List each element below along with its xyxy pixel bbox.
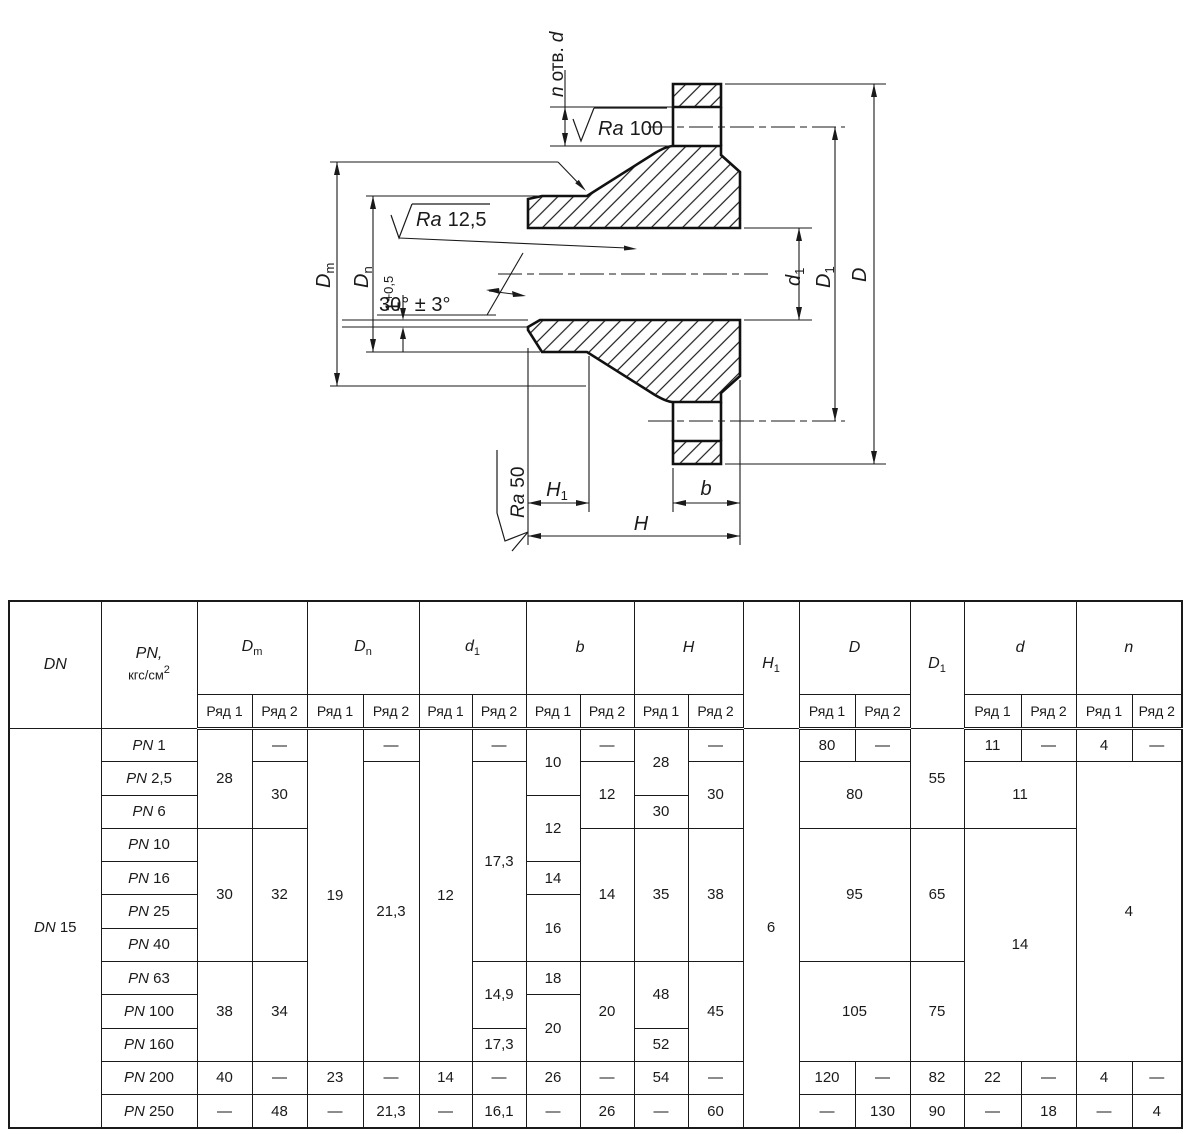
value-cell: — — [197, 1095, 252, 1128]
pn-cell: PN 2,5 — [101, 762, 197, 795]
pn-cell: PN 250 — [101, 1095, 197, 1128]
subheader-ryad1: Ряд 1 — [307, 695, 363, 729]
subheader-ryad1: Ряд 1 — [634, 695, 688, 729]
col-header-pn: PN,кгс/см2 — [101, 601, 197, 729]
subheader-ryad2: Ряд 2 — [580, 695, 634, 729]
value-cell: — — [580, 1061, 634, 1094]
col-header-dn-hub: Dn — [307, 601, 419, 695]
col-header-d1: d1 — [419, 601, 526, 695]
value-cell: 80 — [799, 762, 910, 829]
pn-cell: PN 160 — [101, 1028, 197, 1061]
col-header-b: b — [526, 601, 634, 695]
value-cell: 30 — [634, 795, 688, 828]
value-cell: 14 — [964, 828, 1076, 1061]
angle-label: 30° ± 3° — [379, 294, 450, 316]
pn-cell: PN 10 — [101, 828, 197, 861]
subheader-ryad1: Ряд 1 — [1076, 695, 1132, 729]
value-cell: — — [688, 1061, 743, 1094]
value-cell: — — [1132, 1061, 1182, 1094]
col-header-h: H — [634, 601, 743, 695]
flange-upper-body — [528, 146, 740, 228]
dim-label-d1-bore: d1 — [783, 268, 807, 286]
flange-drawing-svg: nотв.d Ra100 Ra12,5 Ra50 1+0,5 30° ± 3° … — [0, 0, 1189, 588]
value-cell: 75 — [910, 962, 964, 1062]
value-cell: 14 — [580, 828, 634, 961]
pn-cell: PN 16 — [101, 862, 197, 895]
dim-label-dn: Dn — [351, 266, 375, 288]
dim-label-dm: Dm — [313, 263, 337, 288]
value-cell: 21,3 — [363, 1095, 419, 1128]
subheader-ryad2: Ряд 2 — [1132, 695, 1182, 729]
value-cell: — — [580, 729, 634, 762]
value-cell: — — [1132, 729, 1182, 762]
value-cell: 26 — [526, 1061, 580, 1094]
value-cell: 16 — [526, 895, 580, 962]
dim-label-H: H — [634, 513, 649, 535]
value-cell: — — [634, 1095, 688, 1128]
subheader-ryad1: Ряд 1 — [964, 695, 1021, 729]
value-cell: 12 — [419, 729, 472, 1062]
value-cell: 10 — [526, 729, 580, 796]
value-cell: 17,3 — [472, 762, 526, 962]
ra12-5-label: Ra12,5 — [416, 209, 487, 231]
subheader-ryad1: Ряд 1 — [799, 695, 855, 729]
value-cell: 65 — [910, 828, 964, 961]
table-row-pn2-5: PN 2,5 30 21,3 17,3 12 30 80 11 4 — [9, 762, 1182, 795]
flange-dimensions-table: DN PN,кгс/см2 Dm Dn d1 b H H1 D D1 d n Р… — [8, 600, 1183, 1129]
value-cell: — — [855, 1061, 910, 1094]
table-row-pn250: PN 250 — 48 — 21,3 — 16,1 — 26 — 60 — 13… — [9, 1095, 1182, 1128]
table-row-pn1: DN 15 PN 1 28 — 19 — 12 — 10 — 28 — 6 80… — [9, 729, 1182, 762]
value-cell: — — [252, 729, 307, 762]
value-cell: 4 — [1076, 1061, 1132, 1094]
value-cell: — — [419, 1095, 472, 1128]
value-cell: 30 — [252, 762, 307, 829]
col-header-D: D — [799, 601, 910, 695]
pn-cell: PN 1 — [101, 729, 197, 762]
ra100-label: Ra100 — [598, 118, 663, 140]
value-cell: 4 — [1132, 1095, 1182, 1128]
value-cell: 80 — [799, 729, 855, 762]
flange-upper-rim — [673, 84, 721, 107]
value-cell: 11 — [964, 762, 1076, 829]
value-cell: 90 — [910, 1095, 964, 1128]
flange-technical-drawing: nотв.d Ra100 Ra12,5 Ra50 1+0,5 30° ± 3° … — [0, 0, 1189, 588]
value-cell: 34 — [252, 962, 307, 1062]
dim-label-H1: H1 — [546, 479, 568, 503]
value-cell: 105 — [799, 962, 910, 1062]
value-cell: — — [307, 1095, 363, 1128]
value-cell: — — [526, 1095, 580, 1128]
value-cell: 95 — [799, 828, 910, 961]
value-cell: 28 — [634, 729, 688, 796]
value-cell: 48 — [634, 962, 688, 1029]
value-cell: — — [363, 1061, 419, 1094]
value-cell: 120 — [799, 1061, 855, 1094]
value-cell: 6 — [743, 729, 799, 1129]
value-cell: 23 — [307, 1061, 363, 1094]
value-cell: — — [1076, 1095, 1132, 1128]
value-cell: — — [472, 729, 526, 762]
pn-cell: PN 25 — [101, 895, 197, 928]
col-header-dn: DN — [9, 601, 101, 729]
subheader-ryad2: Ряд 2 — [472, 695, 526, 729]
value-cell: 26 — [580, 1095, 634, 1128]
subheader-ryad2: Ряд 2 — [1021, 695, 1076, 729]
value-cell: 20 — [580, 962, 634, 1062]
subheader-ryad1: Ряд 1 — [419, 695, 472, 729]
value-cell: 18 — [526, 962, 580, 995]
value-cell: 4 — [1076, 729, 1132, 762]
pn-cell: PN 40 — [101, 928, 197, 961]
flange-lower-body — [528, 320, 740, 402]
table-row-pn10: PN 10 30 32 14 35 38 95 65 14 — [9, 828, 1182, 861]
dim-label-b: b — [700, 478, 711, 500]
dn-cell: DN 15 — [9, 729, 101, 1129]
value-cell: 16,1 — [472, 1095, 526, 1128]
subheader-ryad1: Ряд 1 — [197, 695, 252, 729]
pn-cell: PN 63 — [101, 962, 197, 995]
value-cell: 32 — [252, 828, 307, 961]
value-cell: 28 — [197, 729, 252, 829]
drawing-labels: nотв.d Ra100 Ra12,5 Ra50 1+0,5 30° ± 3° … — [313, 30, 871, 535]
col-header-d: d — [964, 601, 1076, 695]
value-cell: 30 — [688, 762, 743, 829]
dim-label-D: D — [849, 268, 871, 282]
value-cell: 12 — [526, 795, 580, 862]
subheader-ryad2: Ряд 2 — [252, 695, 307, 729]
value-cell: 130 — [855, 1095, 910, 1128]
value-cell: 60 — [688, 1095, 743, 1128]
value-cell: 14 — [419, 1061, 472, 1094]
value-cell: 38 — [688, 828, 743, 961]
subheader-ryad2: Ряд 2 — [688, 695, 743, 729]
value-cell: 82 — [910, 1061, 964, 1094]
pn-cell: PN 6 — [101, 795, 197, 828]
n-holes-label: nотв.d — [547, 30, 568, 97]
value-cell: 4 — [1076, 762, 1182, 1062]
value-cell: 38 — [197, 962, 252, 1062]
value-cell: — — [855, 729, 910, 762]
col-header-dm: Dm — [197, 601, 307, 695]
ra50-label: Ra50 — [508, 467, 529, 518]
value-cell: 18 — [1021, 1095, 1076, 1128]
value-cell: 21,3 — [363, 762, 419, 1062]
subheader-ryad2: Ряд 2 — [855, 695, 910, 729]
value-cell: — — [799, 1095, 855, 1128]
subheader-ryad1: Ряд 1 — [526, 695, 580, 729]
value-cell: — — [1021, 1061, 1076, 1094]
value-cell: 22 — [964, 1061, 1021, 1094]
col-header-h1: H1 — [743, 601, 799, 729]
col-header-n: n — [1076, 601, 1182, 695]
value-cell: 17,3 — [472, 1028, 526, 1061]
table-row-pn200: PN 200 40 — 23 — 14 — 26 — 54 — 120 — 82… — [9, 1061, 1182, 1094]
dim-label-D1: D1 — [813, 266, 837, 288]
value-cell: — — [964, 1095, 1021, 1128]
subheader-ryad2: Ряд 2 — [363, 695, 419, 729]
value-cell: 20 — [526, 995, 580, 1062]
value-cell: 14,9 — [472, 962, 526, 1029]
value-cell: 14 — [526, 862, 580, 895]
value-cell: 40 — [197, 1061, 252, 1094]
value-cell: — — [688, 729, 743, 762]
value-cell: 35 — [634, 828, 688, 961]
pn-cell: PN 200 — [101, 1061, 197, 1094]
value-cell: 19 — [307, 729, 363, 1062]
col-header-D1: D1 — [910, 601, 964, 729]
value-cell: — — [1021, 729, 1076, 762]
value-cell: 55 — [910, 729, 964, 829]
flange-lower-rim — [673, 441, 721, 464]
value-cell: 48 — [252, 1095, 307, 1128]
value-cell: 52 — [634, 1028, 688, 1061]
value-cell: — — [252, 1061, 307, 1094]
pn-cell: PN 100 — [101, 995, 197, 1028]
value-cell: 54 — [634, 1061, 688, 1094]
value-cell: — — [363, 729, 419, 762]
value-cell: 11 — [964, 729, 1021, 762]
value-cell: 30 — [197, 828, 252, 961]
value-cell: — — [472, 1061, 526, 1094]
value-cell: 45 — [688, 962, 743, 1062]
value-cell: 12 — [580, 762, 634, 829]
